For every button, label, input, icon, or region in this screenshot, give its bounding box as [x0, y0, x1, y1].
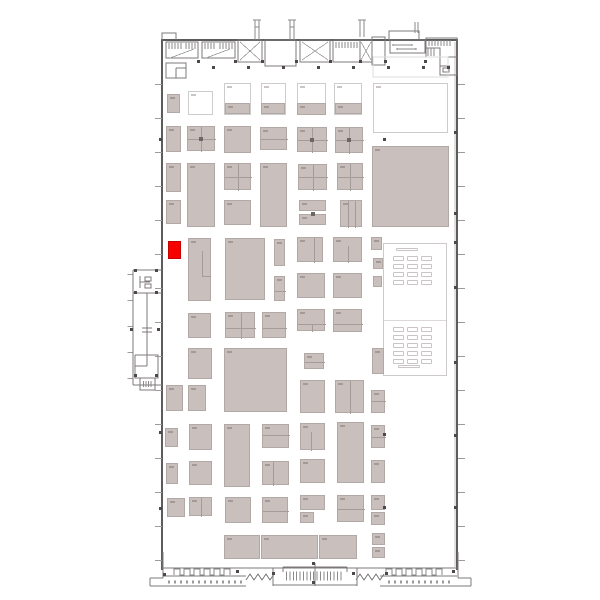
column-mark — [159, 507, 162, 510]
booth-label-mark — [190, 129, 195, 131]
booth[interactable] — [297, 127, 327, 152]
booth[interactable] — [165, 428, 178, 447]
booth-divider — [311, 432, 312, 451]
booth-label-mark — [263, 166, 268, 168]
column-mark — [295, 60, 298, 63]
booth[interactable] — [297, 103, 326, 115]
booth-divider — [263, 511, 289, 512]
column-mark — [282, 66, 285, 69]
column-mark — [452, 570, 455, 573]
booth-label-mark — [228, 500, 233, 502]
column-mark — [236, 570, 239, 573]
booth[interactable] — [166, 200, 181, 224]
booth-label-mark — [303, 462, 308, 464]
booth-divider — [275, 291, 286, 292]
booth[interactable] — [225, 103, 250, 114]
booth-label-mark — [277, 242, 282, 244]
booth[interactable] — [224, 424, 250, 487]
booth-label-mark — [300, 86, 305, 88]
booth[interactable] — [225, 497, 251, 523]
booth[interactable] — [166, 163, 181, 192]
booth[interactable] — [262, 312, 286, 338]
column-mark — [385, 572, 388, 575]
booth-divider — [312, 324, 313, 332]
seating-table — [407, 343, 418, 348]
booth-label-mark — [191, 94, 196, 96]
seating-table — [393, 335, 404, 340]
seating-table — [393, 343, 404, 348]
booth-divider — [314, 238, 315, 263]
booth[interactable] — [224, 535, 260, 559]
column-mark — [155, 374, 158, 377]
booth-label-mark — [169, 166, 174, 168]
booth-label-mark — [374, 498, 379, 500]
booth-label-mark — [336, 276, 341, 278]
booth[interactable] — [371, 425, 385, 448]
column-mark — [155, 291, 158, 294]
booth-label-mark — [170, 501, 175, 503]
booth-label-mark — [337, 86, 342, 88]
booth[interactable] — [300, 512, 314, 523]
seating-table — [396, 248, 418, 251]
booth[interactable] — [337, 422, 364, 483]
booth-label-mark — [374, 463, 379, 465]
booth[interactable] — [335, 127, 363, 153]
booth[interactable] — [166, 385, 183, 411]
booth[interactable] — [373, 83, 448, 133]
seating-table — [407, 351, 418, 356]
column-mark — [352, 66, 355, 69]
booth-marker — [311, 212, 315, 216]
booth[interactable] — [300, 459, 325, 483]
booth-label-mark — [375, 351, 380, 353]
booth-divider — [305, 362, 325, 363]
booth-divider — [273, 462, 274, 486]
booth-divider — [261, 139, 288, 140]
floor-plan — [0, 0, 600, 600]
seating-table — [407, 327, 418, 332]
booth[interactable] — [299, 200, 326, 211]
booth[interactable] — [297, 273, 325, 298]
column-mark — [387, 66, 390, 69]
booth-label-mark — [227, 86, 232, 88]
wall-ticks-right — [458, 84, 465, 566]
column-mark — [359, 60, 362, 63]
seating-table — [407, 359, 418, 364]
booth-label-mark — [191, 316, 196, 318]
column-mark — [383, 138, 386, 141]
booth-label-mark — [340, 425, 345, 427]
booth-label-mark — [228, 315, 233, 317]
column-mark — [234, 60, 237, 63]
booth-label-mark — [265, 500, 270, 502]
booth-label-mark — [300, 276, 305, 278]
booth[interactable] — [188, 91, 213, 115]
booth-label-mark — [338, 383, 343, 385]
column-mark — [383, 433, 386, 436]
booth-label-mark — [303, 498, 308, 500]
booth[interactable] — [371, 512, 385, 525]
booth-marker — [347, 138, 351, 142]
booth[interactable] — [260, 127, 287, 150]
seating-table — [421, 359, 432, 364]
booth-divider — [241, 313, 242, 339]
booth-label-mark — [300, 130, 305, 132]
column-mark — [317, 66, 320, 69]
seating-table — [407, 256, 418, 261]
column-mark — [454, 286, 457, 289]
column-mark — [134, 269, 137, 272]
booth[interactable] — [166, 126, 181, 152]
seating-table — [421, 335, 432, 340]
booth[interactable] — [187, 126, 215, 151]
booth[interactable] — [187, 163, 215, 227]
booth-label-mark — [302, 217, 307, 219]
booth-label-mark — [336, 312, 341, 314]
booth[interactable] — [335, 380, 364, 413]
column-mark — [329, 60, 332, 63]
booth-label-mark — [192, 427, 197, 429]
booth[interactable] — [340, 200, 362, 227]
booth[interactable] — [373, 276, 382, 287]
booth[interactable] — [274, 239, 285, 266]
seating-table — [398, 365, 420, 368]
booth[interactable] — [333, 237, 362, 262]
booth-divider — [350, 381, 351, 414]
seating-table — [393, 280, 404, 285]
column-mark — [212, 66, 215, 69]
booth-divider — [338, 177, 364, 178]
column-mark — [130, 328, 133, 331]
booth[interactable] — [188, 348, 212, 379]
booth-label-mark — [376, 86, 381, 88]
booth-divider — [348, 246, 349, 263]
column-mark — [312, 562, 315, 565]
column-mark — [159, 138, 162, 141]
booth-label-mark — [277, 279, 282, 281]
seating-table — [393, 351, 404, 356]
booth[interactable] — [333, 273, 362, 298]
booth-marker — [199, 137, 203, 141]
booth-label-mark — [301, 167, 306, 169]
booth-label-mark — [227, 203, 232, 205]
booth-label-mark — [170, 97, 175, 99]
seating-table — [393, 264, 404, 269]
column-mark — [163, 573, 166, 576]
booth[interactable] — [262, 424, 289, 448]
booth[interactable] — [224, 348, 287, 412]
booth-label-mark — [227, 427, 232, 429]
booth[interactable] — [298, 164, 327, 190]
booth-marker — [310, 138, 314, 142]
booth[interactable] — [167, 498, 185, 517]
booth-label-mark — [375, 149, 380, 151]
booth[interactable] — [188, 385, 206, 411]
booth[interactable] — [372, 533, 385, 545]
column-mark — [454, 434, 457, 437]
booth-label-mark — [300, 106, 305, 108]
booth-label-mark — [169, 388, 174, 390]
seating-table — [393, 327, 404, 332]
booth-label-mark — [265, 427, 270, 429]
booth-divider — [263, 328, 287, 329]
booth-label-mark — [336, 240, 341, 242]
column-mark — [159, 431, 162, 434]
booth-label-mark — [374, 428, 379, 430]
booth-label-mark — [302, 203, 307, 205]
booth-divider — [372, 437, 386, 438]
booth-label-mark — [228, 241, 233, 243]
booth-label-mark — [263, 130, 268, 132]
booth[interactable] — [372, 348, 384, 374]
booth-label-mark — [374, 393, 379, 395]
booth-label-mark — [191, 351, 196, 353]
booth[interactable] — [224, 163, 251, 190]
column-mark — [447, 66, 450, 69]
booth-label-mark — [192, 500, 197, 502]
booth[interactable] — [335, 103, 362, 114]
seating-table — [421, 272, 432, 277]
booth[interactable] — [300, 380, 325, 413]
booth[interactable] — [188, 313, 211, 338]
column-mark — [454, 241, 457, 244]
booth[interactable] — [337, 495, 364, 522]
seating-table — [407, 335, 418, 340]
column-mark — [272, 572, 275, 575]
booth[interactable] — [337, 163, 363, 190]
booth[interactable] — [300, 423, 325, 450]
seating-table — [421, 264, 432, 269]
booth-label-mark — [303, 426, 308, 428]
seating-table — [421, 327, 432, 332]
booth-label-mark — [264, 106, 269, 108]
seating-table — [393, 272, 404, 277]
booth[interactable] — [304, 353, 324, 369]
column-mark — [424, 60, 427, 63]
booth[interactable] — [262, 497, 288, 523]
seating-table — [421, 351, 432, 356]
column-mark — [155, 269, 158, 272]
column-mark — [384, 60, 387, 63]
booth[interactable] — [225, 238, 265, 300]
seating-table — [421, 280, 432, 285]
booth[interactable] — [224, 126, 251, 153]
booth-label-mark — [338, 106, 343, 108]
column-mark — [134, 291, 137, 294]
booth-divider — [313, 165, 314, 191]
booth-divider — [202, 276, 211, 277]
booth-divider — [225, 177, 252, 178]
booth[interactable] — [299, 214, 326, 225]
booth[interactable] — [372, 547, 385, 558]
column-mark — [312, 581, 315, 584]
booth[interactable] — [225, 312, 255, 338]
booth[interactable] — [189, 424, 212, 450]
booth-label-mark — [303, 383, 308, 385]
column-mark — [247, 66, 250, 69]
seating-table — [421, 343, 432, 348]
booth[interactable] — [224, 200, 251, 225]
column-mark — [454, 212, 457, 215]
wall-ticks-left — [155, 84, 162, 566]
booth-label-mark — [169, 129, 174, 131]
booth[interactable] — [371, 390, 385, 413]
booth-label-mark — [375, 550, 380, 552]
booth[interactable] — [260, 163, 287, 227]
booth-divider — [355, 201, 356, 228]
booth-label-mark — [303, 515, 308, 517]
booth-label-mark — [265, 464, 270, 466]
seating-table — [393, 359, 404, 364]
booth[interactable] — [188, 238, 211, 301]
booth-label-mark — [375, 536, 380, 538]
booth-label-mark — [300, 312, 305, 314]
booth-divider — [372, 401, 386, 402]
booth-label-mark — [191, 241, 196, 243]
column-mark — [352, 572, 355, 575]
column-mark — [454, 506, 457, 509]
booth[interactable] — [371, 237, 382, 250]
booth-label-mark — [264, 86, 269, 88]
booth-label-mark — [265, 315, 270, 317]
booth-label-mark — [191, 388, 196, 390]
column-mark — [134, 374, 137, 377]
booth-divider — [226, 328, 256, 329]
booth-label-mark — [374, 240, 379, 242]
booth[interactable] — [274, 276, 285, 301]
booth[interactable] — [166, 463, 178, 484]
booth-divider — [299, 177, 328, 178]
booth-highlighted[interactable] — [168, 241, 181, 259]
booth-label-mark — [264, 538, 269, 540]
booth[interactable] — [319, 535, 357, 559]
booth-label-mark — [340, 166, 345, 168]
booth-divider — [201, 498, 202, 517]
booth-label-mark — [190, 166, 195, 168]
booth-divider — [263, 435, 290, 436]
booth-label-mark — [192, 464, 197, 466]
booth[interactable] — [371, 460, 385, 483]
seating-table — [407, 272, 418, 277]
booth-label-mark — [169, 203, 174, 205]
booth-label-mark — [376, 261, 381, 263]
booth[interactable] — [261, 535, 318, 559]
booth[interactable] — [297, 309, 325, 331]
seating-area — [383, 243, 447, 376]
column-mark — [422, 66, 425, 69]
booth[interactable] — [189, 461, 212, 485]
booth[interactable] — [261, 103, 285, 114]
booth-label-mark — [307, 356, 312, 358]
booth-divider — [202, 251, 203, 277]
booth-label-mark — [227, 538, 232, 540]
booth-label-mark — [340, 498, 345, 500]
booth-divider — [348, 201, 349, 228]
booth-label-mark — [168, 431, 173, 433]
booth-label-mark — [227, 129, 232, 131]
booth[interactable] — [300, 495, 325, 510]
booth-divider — [338, 509, 365, 510]
booth-label-mark — [322, 538, 327, 540]
seating-table — [421, 256, 432, 261]
booth[interactable] — [167, 94, 180, 113]
booth[interactable] — [297, 237, 323, 262]
seating-table — [407, 264, 418, 269]
booth[interactable] — [333, 309, 362, 332]
booth[interactable] — [262, 461, 289, 485]
booth[interactable] — [372, 146, 449, 227]
booth-label-mark — [228, 106, 233, 108]
booth[interactable] — [373, 258, 383, 269]
column-mark — [197, 60, 200, 63]
booth-divider — [334, 324, 363, 325]
booth-label-mark — [374, 515, 379, 517]
column-mark — [157, 328, 160, 331]
booth-label-mark — [227, 351, 232, 353]
booth-label-mark — [338, 130, 343, 132]
booth-label-mark — [227, 166, 232, 168]
seating-table — [393, 256, 404, 261]
booth[interactable] — [189, 497, 212, 516]
column-mark — [383, 506, 386, 509]
column-mark — [454, 361, 457, 364]
booth-label-mark — [169, 466, 174, 468]
booth-label-mark — [300, 240, 305, 242]
seating-divider — [384, 320, 446, 321]
column-mark — [261, 60, 264, 63]
column-mark — [454, 131, 457, 134]
seating-table — [407, 280, 418, 285]
